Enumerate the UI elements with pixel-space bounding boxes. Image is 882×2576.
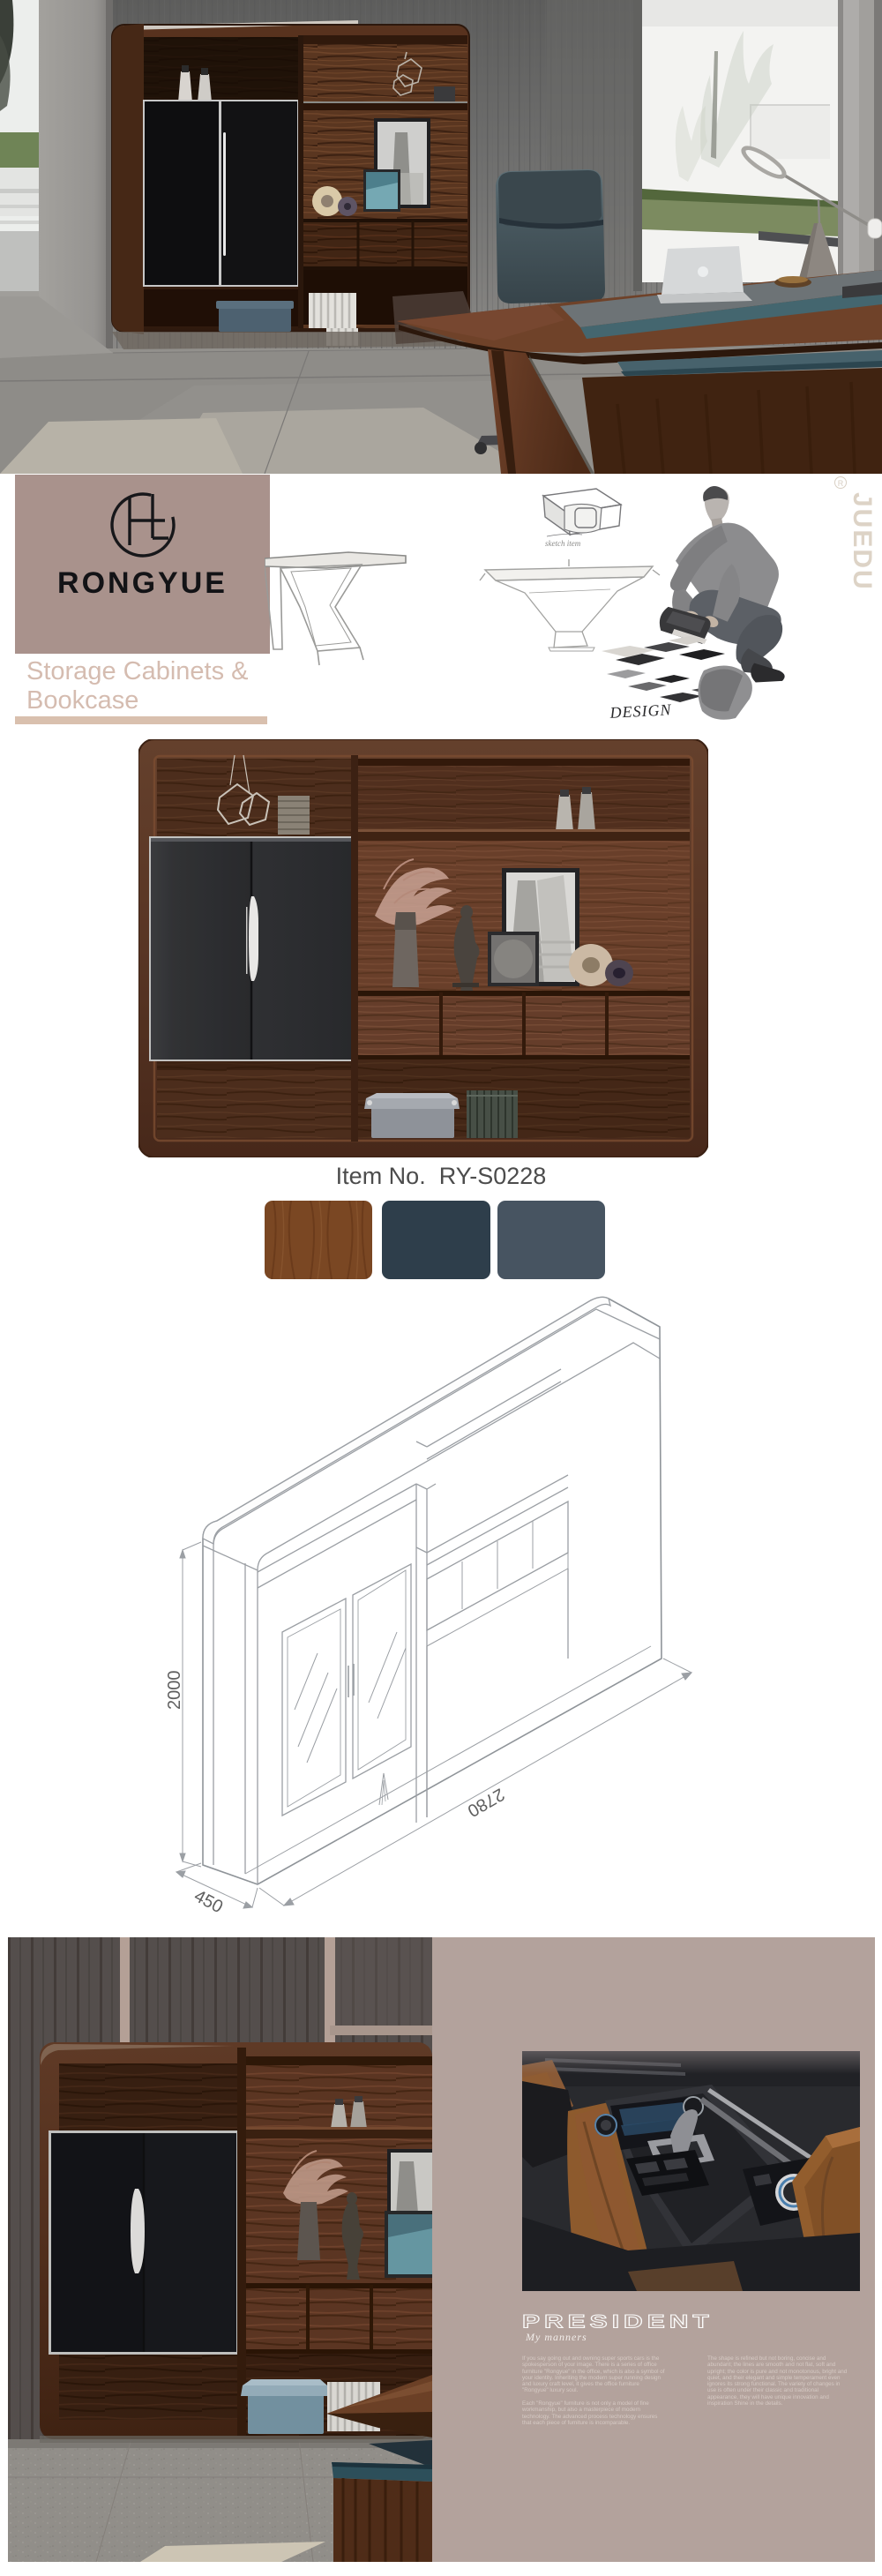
- svg-text:2000: 2000: [165, 1671, 184, 1711]
- svg-text:450: 450: [191, 1886, 226, 1917]
- svg-text:DESIGN: DESIGN: [609, 700, 672, 722]
- svg-text:sketch item: sketch item: [545, 539, 581, 548]
- svg-text:2780: 2780: [464, 1784, 508, 1820]
